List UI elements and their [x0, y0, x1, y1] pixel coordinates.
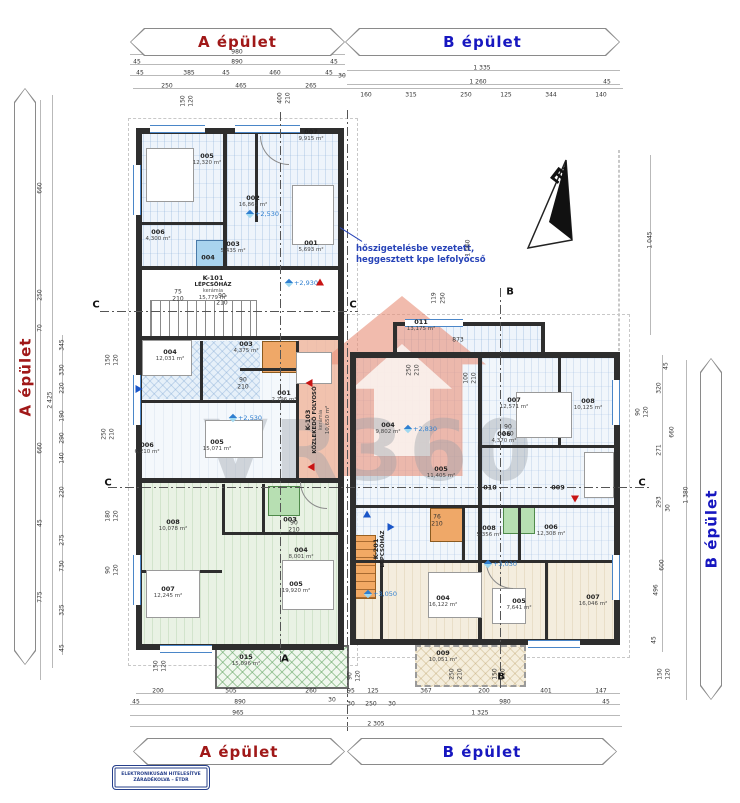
window	[160, 645, 212, 653]
wall-segment	[222, 484, 225, 532]
dimension-label: 150	[657, 668, 664, 679]
section-marker: B	[506, 287, 514, 298]
wall-outline-b-top-bay	[393, 322, 545, 356]
banner-label: B épület	[443, 33, 522, 51]
dimension-label: 150	[180, 95, 187, 106]
terrace-015	[215, 645, 349, 689]
dim-line	[62, 335, 63, 655]
furniture-bed	[584, 452, 614, 498]
wall-segment	[380, 560, 383, 639]
window	[405, 319, 463, 327]
wall-segment	[142, 266, 338, 270]
dimension-label: 250	[440, 292, 447, 303]
dim-line	[650, 155, 651, 335]
dim-line	[130, 75, 345, 76]
dimension-label: 30	[338, 73, 346, 80]
furniture-bed	[146, 148, 194, 202]
section-line-building-separation	[347, 110, 348, 733]
dimension-label: 45	[651, 636, 658, 644]
dimension-label: 45	[663, 362, 670, 370]
dimension-label: 120	[355, 670, 362, 681]
annotation-line1: hőszigetelésbe vezetett,	[356, 244, 486, 255]
dim-line	[40, 100, 41, 680]
dimension-label: 150	[105, 354, 112, 365]
wall-segment	[356, 560, 614, 563]
dimension-label: 120	[113, 510, 120, 521]
window	[133, 555, 141, 605]
wall-segment	[518, 505, 521, 560]
section-line-b	[500, 288, 501, 688]
section-line-c-upper	[100, 311, 358, 312]
banner-top-building-b: B épület	[345, 28, 620, 56]
dim-line	[130, 704, 620, 705]
banner-label: A épület	[200, 743, 279, 761]
dimension-label: 210	[109, 428, 116, 439]
furniture-sofa	[205, 420, 263, 458]
dim-line	[136, 693, 620, 694]
wall-segment	[356, 505, 614, 508]
drain-annotation: hőszigetelésbe vezetett, heggesztett kpe…	[356, 244, 486, 266]
dimension-label: 660	[669, 426, 676, 437]
dim-line	[347, 84, 620, 85]
wall-segment	[545, 560, 548, 639]
dimension-label: 90	[105, 566, 112, 574]
north-arrow	[522, 150, 582, 264]
annotation-line2: heggesztett kpe lefolyócső	[356, 255, 486, 266]
banner-label: B épület	[702, 490, 720, 569]
dimension-label: 210	[285, 92, 292, 103]
furniture-table	[296, 352, 332, 384]
wall-segment	[142, 400, 296, 403]
wall-segment	[255, 134, 258, 222]
window	[133, 165, 141, 215]
dimension-label: 120	[113, 564, 120, 575]
banner-right-building-b: B épület	[700, 358, 722, 700]
stamp-line2: ZÁRADÉKOLVA – ÉTDR	[133, 778, 188, 784]
dim-line	[52, 95, 53, 668]
dimension-label: 30	[328, 697, 336, 704]
dimension-label: 160	[360, 92, 371, 99]
section-line-a	[280, 112, 281, 662]
dimension-label: 119	[431, 292, 438, 303]
wall-segment	[240, 368, 296, 371]
dimension-label: 400	[277, 92, 284, 103]
etdr-stamp: ELEKTRONIKUSAN HITELESÍTVE ZÁRADÉKOLVA –…	[112, 765, 210, 790]
section-line-c	[108, 487, 652, 488]
window	[150, 125, 205, 133]
wall-outline-building-b	[350, 352, 620, 645]
window	[235, 125, 300, 133]
furniture-sofa	[428, 572, 482, 618]
wall-segment	[223, 134, 227, 266]
dimension-label: 180	[105, 510, 112, 521]
dim-line	[686, 360, 687, 700]
furniture-bed	[516, 392, 572, 438]
banner-top-building-a: A épület	[130, 28, 345, 56]
dim-line	[130, 715, 620, 716]
window	[528, 640, 580, 648]
furniture-sofa	[292, 185, 334, 245]
dim-line	[133, 88, 623, 89]
dimension-label: 120	[665, 668, 672, 679]
dimension-label: 90	[635, 408, 642, 416]
dimension-label: 315	[405, 92, 416, 99]
dimension-label: 125	[500, 92, 511, 99]
floorplan-sheet: VR360	[0, 0, 740, 803]
banner-bottom-building-b: A épületB épület	[347, 738, 617, 765]
banner-left-building-a: A épület	[14, 88, 36, 665]
dimension-label: 344	[545, 92, 556, 99]
dim-line	[130, 726, 622, 727]
wall-segment	[262, 484, 265, 532]
eave-line-right	[618, 150, 620, 356]
wall-segment	[142, 222, 223, 225]
section-marker: C	[92, 300, 99, 311]
terrace-009	[415, 645, 526, 687]
window	[612, 555, 620, 600]
dim-line	[347, 70, 620, 71]
banner-label: B épület	[443, 743, 522, 761]
dimension-label: 496	[653, 584, 660, 595]
dim-line	[662, 355, 663, 652]
dimension-label: 140	[595, 92, 606, 99]
banner-bottom-building-a: A épület	[133, 738, 345, 765]
furniture-table	[492, 588, 526, 624]
wall-segment	[462, 505, 465, 560]
wall-segment	[482, 445, 614, 448]
wall-segment	[200, 341, 203, 400]
dimension-label: 120	[643, 406, 650, 417]
banner-label: A épület	[198, 33, 277, 51]
banner-label: A épület	[16, 337, 34, 416]
window	[612, 380, 620, 425]
furniture-sofa	[282, 560, 334, 610]
dimension-label: 120	[113, 354, 120, 365]
dimension-label: 30	[665, 504, 672, 512]
dimension-label: 250	[101, 428, 108, 439]
furniture-bed	[142, 340, 192, 376]
dim-line	[130, 64, 345, 65]
dimension-label: 250	[460, 92, 471, 99]
window	[133, 375, 141, 425]
dimension-label: 120	[188, 95, 195, 106]
furniture-bed	[146, 570, 200, 618]
